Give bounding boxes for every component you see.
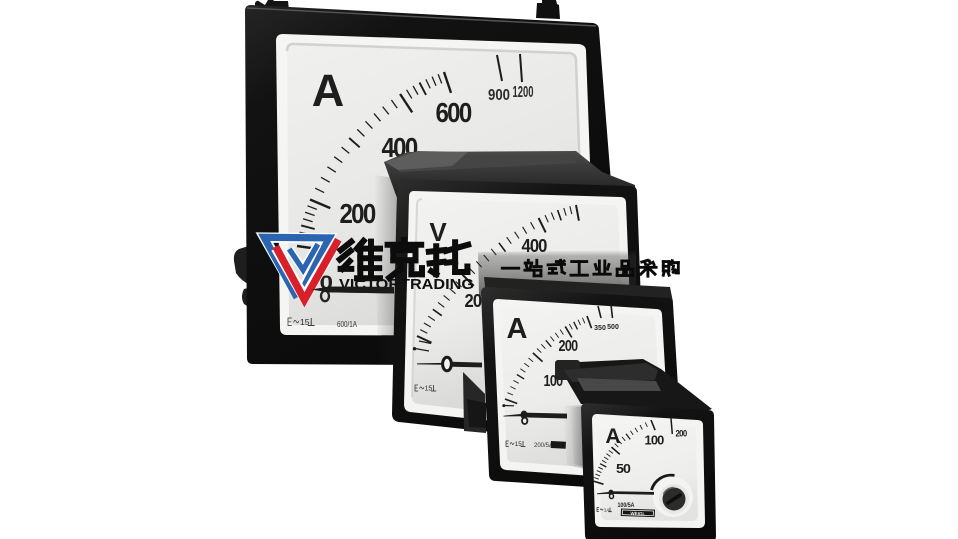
svg-text:100: 100 (645, 434, 665, 448)
svg-text:A: A (312, 65, 345, 116)
svg-text:100/5A: 100/5A (618, 502, 635, 509)
svg-text:200: 200 (676, 429, 687, 440)
svg-text:50: 50 (616, 462, 631, 476)
svg-text:600: 600 (436, 97, 472, 128)
svg-text:A: A (507, 313, 528, 345)
svg-text:15: 15 (515, 441, 523, 448)
svg-text:350: 350 (594, 325, 606, 332)
svg-text:1A: 1A (604, 508, 611, 514)
svg-text:200/5A: 200/5A (534, 443, 553, 449)
svg-text:600/1A: 600/1A (337, 320, 358, 329)
svg-text:1200: 1200 (513, 84, 534, 101)
svg-text:A: A (605, 425, 620, 448)
svg-text:900: 900 (488, 87, 510, 104)
svg-text:500: 500 (607, 324, 619, 331)
svg-text:WEIGL: WEIGL (630, 511, 645, 517)
svg-text:V: V (429, 217, 447, 247)
svg-text:15: 15 (425, 386, 433, 393)
svg-text:200: 200 (559, 338, 578, 355)
svg-text:200: 200 (340, 198, 376, 229)
